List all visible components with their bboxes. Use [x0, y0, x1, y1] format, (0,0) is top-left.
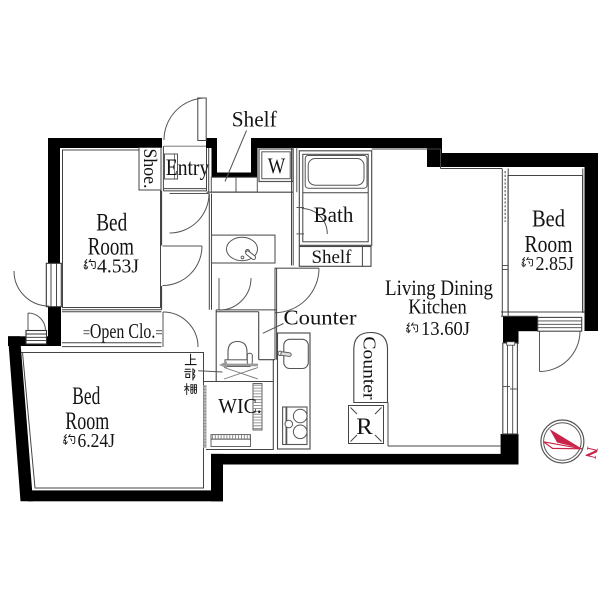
svg-text:2.85J: 2.85J	[536, 254, 575, 275]
svg-text:4.53J: 4.53J	[97, 256, 139, 278]
svg-text:Counter: Counter	[360, 337, 380, 400]
svg-text:Shelf: Shelf	[312, 247, 353, 268]
svg-text:Entry: Entry	[166, 155, 210, 180]
svg-text:W: W	[268, 153, 286, 178]
svg-text:Bed: Bed	[72, 383, 100, 410]
svg-text:R: R	[356, 414, 373, 439]
svg-text:Shelf: Shelf	[232, 107, 278, 132]
svg-text:Open Clo.: Open Clo.	[90, 319, 156, 343]
svg-text:WIC.: WIC.	[218, 394, 262, 418]
svg-text:Bath: Bath	[314, 202, 354, 227]
svg-text:Counter: Counter	[284, 306, 357, 330]
svg-text:Kitchen: Kitchen	[408, 295, 467, 319]
svg-text:Bed: Bed	[532, 207, 565, 233]
svg-text:Shoe.: Shoe.	[139, 149, 160, 189]
svg-text:13.60J: 13.60J	[421, 319, 470, 340]
svg-text:6.24J: 6.24J	[78, 430, 116, 452]
